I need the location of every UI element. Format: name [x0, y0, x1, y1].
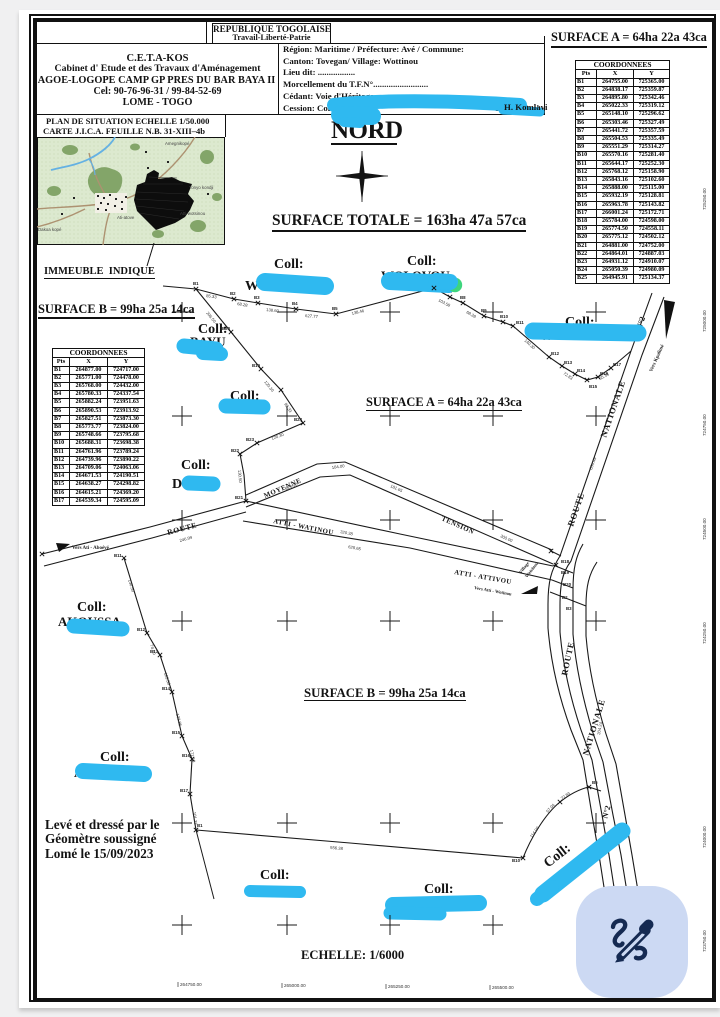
svg-text:Coll:: Coll:	[274, 257, 304, 272]
svg-text:B23: B23	[246, 437, 255, 442]
svg-text:132.85: 132.85	[175, 713, 183, 727]
svg-text:D: D	[172, 477, 182, 492]
svg-text:130.50: 130.50	[127, 579, 136, 593]
svg-text:725000.00: 725000.00	[702, 310, 707, 332]
svg-text:B5: B5	[332, 306, 338, 311]
svg-text:N°2: N°2	[600, 805, 612, 820]
svg-text:H. Komlavi: H. Komlavi	[504, 102, 548, 112]
svg-text:320.38: 320.38	[340, 529, 354, 536]
svg-text:B15: B15	[589, 384, 598, 389]
svg-text:265500.00: 265500.00	[492, 985, 514, 990]
svg-text:654.49: 654.49	[588, 456, 597, 470]
svg-text:724250.00: 724250.00	[702, 622, 707, 644]
svg-text:B11: B11	[516, 320, 524, 325]
svg-text:ATTI - ATTIVOU: ATTI - ATTIVOU	[454, 569, 512, 586]
svg-text:725250.00: 725250.00	[702, 188, 707, 210]
svg-text:85.33: 85.33	[206, 293, 218, 300]
svg-text:723750.00: 723750.00	[702, 930, 707, 952]
svg-text:Vers Atti - Wotinou: Vers Atti - Wotinou	[474, 585, 513, 597]
svg-text:B2: B2	[230, 291, 236, 296]
svg-text:Coll:: Coll:	[407, 254, 437, 269]
svg-text:B12: B12	[551, 351, 560, 356]
svg-text:68.28: 68.28	[237, 301, 249, 308]
svg-text:B10: B10	[512, 858, 521, 863]
svg-text:246.99: 246.99	[179, 535, 193, 543]
svg-text:B15: B15	[172, 730, 181, 735]
svg-text:140.30: 140.30	[523, 338, 536, 351]
svg-text:B3: B3	[566, 606, 572, 611]
svg-text:104.00: 104.00	[331, 463, 345, 470]
svg-text:NATIONALE: NATIONALE	[580, 698, 607, 757]
svg-text:627.77: 627.77	[305, 313, 319, 319]
svg-text:Vers Ati - Aboévé: Vers Ati - Aboévé	[72, 546, 110, 551]
svg-text:B1: B1	[197, 823, 203, 828]
svg-text:265000.00: 265000.00	[284, 983, 306, 988]
svg-text:724000.00: 724000.00	[702, 826, 707, 848]
svg-text:724750.00: 724750.00	[702, 414, 707, 436]
svg-text:556.38: 556.38	[330, 845, 344, 851]
svg-text:204.24: 204.24	[596, 721, 603, 735]
svg-text:Coll:: Coll:	[181, 458, 211, 473]
svg-text:B5: B5	[592, 780, 598, 785]
svg-text:ROUTE: ROUTE	[565, 491, 586, 528]
svg-text:72.83: 72.83	[560, 790, 572, 800]
svg-text:98.33: 98.33	[283, 402, 293, 414]
svg-text:B1: B1	[193, 281, 199, 286]
svg-text:B4: B4	[292, 301, 298, 306]
svg-text:B13: B13	[150, 649, 159, 654]
svg-text:265250.00: 265250.00	[388, 984, 410, 989]
svg-text:B3: B3	[254, 295, 260, 300]
svg-text:B17: B17	[613, 362, 622, 367]
svg-text:B21: B21	[235, 495, 244, 500]
svg-text:B14: B14	[162, 686, 171, 691]
svg-text:625.65: 625.65	[348, 544, 362, 551]
svg-text:B11: B11	[114, 553, 122, 558]
svg-text:B17: B17	[180, 788, 189, 793]
svg-text:B8: B8	[460, 295, 466, 300]
svg-text:B10: B10	[500, 314, 509, 319]
svg-text:B19: B19	[561, 570, 570, 575]
svg-text:264750.00: 264750.00	[180, 982, 202, 987]
svg-text:181.65: 181.65	[390, 483, 404, 493]
svg-text:B14: B14	[577, 368, 586, 373]
svg-text:B13: B13	[564, 360, 573, 365]
svg-text:Coll:: Coll:	[100, 750, 130, 765]
svg-text:B20: B20	[563, 582, 572, 587]
svg-text:B18: B18	[561, 559, 570, 564]
svg-text:122.56: 122.56	[163, 672, 172, 686]
svg-text:120.30: 120.30	[271, 432, 285, 441]
svg-text:B16: B16	[182, 753, 191, 758]
svg-text:Vers Kpalimé: Vers Kpalimé	[649, 343, 666, 372]
svg-text:MOYENNE: MOYENNE	[263, 477, 303, 499]
svg-text:B2: B2	[562, 595, 568, 600]
svg-text:Coll:: Coll:	[260, 868, 290, 883]
svg-text:B12: B12	[137, 627, 146, 632]
svg-text:Coll:: Coll:	[424, 882, 454, 897]
svg-text:724500.00: 724500.00	[702, 518, 707, 540]
svg-text:B16: B16	[600, 371, 609, 376]
svg-text:130.50: 130.50	[237, 470, 243, 484]
svg-text:103.58: 103.58	[438, 297, 452, 308]
svg-text:Coll:: Coll:	[77, 600, 107, 615]
svg-text:TENSION: TENSION	[440, 515, 475, 536]
